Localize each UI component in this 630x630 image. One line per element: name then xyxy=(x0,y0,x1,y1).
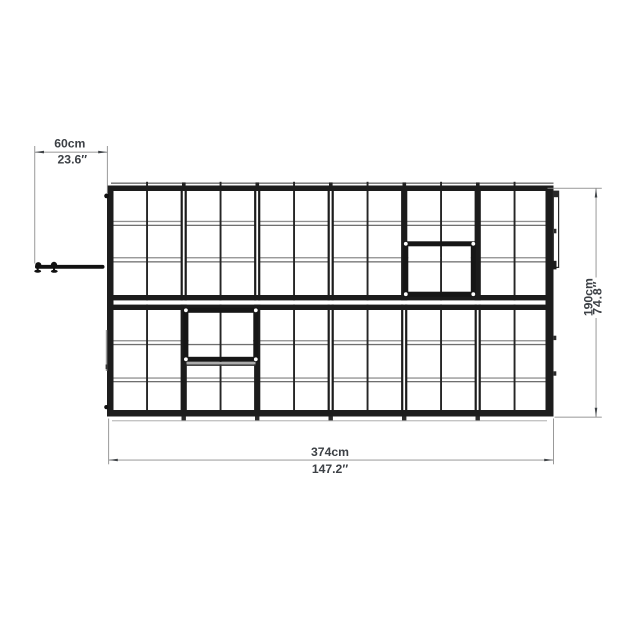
svg-text:74.8″: 74.8″ xyxy=(590,281,604,315)
svg-text:147.2″: 147.2″ xyxy=(312,462,348,476)
svg-text:23.6″: 23.6″ xyxy=(58,152,88,166)
svg-text:60cm: 60cm xyxy=(54,137,85,151)
svg-text:374cm: 374cm xyxy=(311,445,349,459)
